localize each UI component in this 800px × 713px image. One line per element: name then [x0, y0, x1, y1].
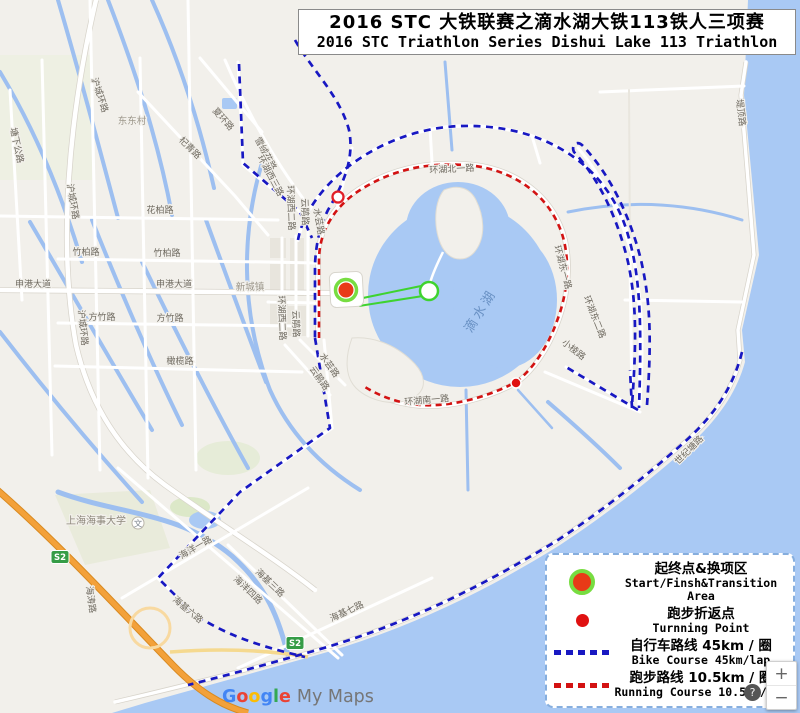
legend-label-zh: 起终点&换项区	[613, 562, 789, 577]
event-title-zh: 2016 STC 大铁联赛之滴水湖大铁113铁人三项赛	[329, 13, 765, 34]
google-logo-letter: o	[248, 687, 260, 707]
svg-text:文: 文	[134, 519, 143, 530]
map-screenshot: 文 S2 S2 东东村 沪城环路 沪城环路 沪城环路 塘下公路 杞青路 夏环路 …	[0, 0, 800, 713]
google-logo-letter: G	[222, 687, 236, 707]
map-label: 竹柏路	[153, 247, 180, 259]
svg-text:S2: S2	[289, 639, 301, 649]
legend-label-en: Start/Finsh&Transition Area	[613, 577, 789, 603]
metro-station-icon	[333, 192, 344, 203]
map-label: 竹柏路	[72, 246, 99, 258]
zoom-in-button[interactable]: +	[767, 662, 796, 685]
running-course-line-swatch	[551, 683, 613, 688]
turning-point-marker[interactable]	[511, 378, 521, 388]
zoom-out-button[interactable]: −	[767, 685, 796, 709]
map-zoom-control: + −	[766, 661, 797, 710]
google-logo-letter: o	[236, 687, 248, 707]
map-label: 云鹃路	[290, 310, 303, 337]
university-label: 上海海事大学	[66, 514, 126, 527]
legend-label-zh: 自行车路线 45km / 圈	[613, 639, 789, 654]
legend-label-en: Bike Course 45km/lap	[613, 654, 789, 667]
map-label: 新城镇	[236, 281, 265, 293]
google-logo-letter: g	[260, 687, 273, 707]
swim-buoy-marker	[420, 282, 438, 300]
route-shield-s2: S2	[51, 551, 69, 564]
map-label: 方竹路	[88, 311, 115, 323]
event-title-en: 2016 STC Triathlon Series Dishui Lake 11…	[317, 34, 778, 51]
my-maps-label: My Maps	[297, 687, 374, 707]
google-logo-letter: e	[279, 687, 291, 707]
bike-course-line-swatch	[551, 650, 613, 655]
google-my-maps-watermark[interactable]: GoogleMy Maps	[222, 687, 374, 707]
legend-row-bike-course: 自行车路线 45km / 圈 Bike Course 45km/lap	[551, 639, 789, 667]
legend-label-en: Running Course 10.5km/lap	[613, 686, 789, 699]
svg-text:S2: S2	[54, 553, 66, 563]
start-finish-marker-swatch	[551, 569, 613, 595]
map-label: 橄榄路	[166, 355, 193, 367]
map-label: 申港大道	[15, 278, 51, 290]
start-finish-transition-marker[interactable]	[329, 271, 364, 308]
map-label: 东东村	[118, 115, 147, 127]
map-label: 云鹃路	[299, 198, 312, 225]
legend-row-start-finish: 起终点&换项区 Start/Finsh&Transition Area	[551, 562, 789, 603]
event-title-banner: 2016 STC 大铁联赛之滴水湖大铁113铁人三项赛 2016 STC Tri…	[298, 9, 796, 55]
map-label: 申港大道	[156, 278, 192, 290]
legend-row-turning-point: 跑步折返点 Turnning Point	[551, 607, 789, 635]
help-button[interactable]: ?	[744, 684, 761, 701]
turning-point-marker-swatch	[551, 614, 613, 627]
legend-label-zh: 跑步折返点	[613, 607, 789, 622]
map-label: 方竹路	[156, 312, 183, 324]
legend-label-zh: 跑步路线 10.5km / 圈	[613, 671, 789, 686]
legend-label-en: Turnning Point	[613, 622, 789, 635]
route-shield-s2: S2	[286, 637, 304, 650]
university-icon: 文	[132, 517, 144, 530]
map-label: 花柏路	[146, 204, 173, 216]
